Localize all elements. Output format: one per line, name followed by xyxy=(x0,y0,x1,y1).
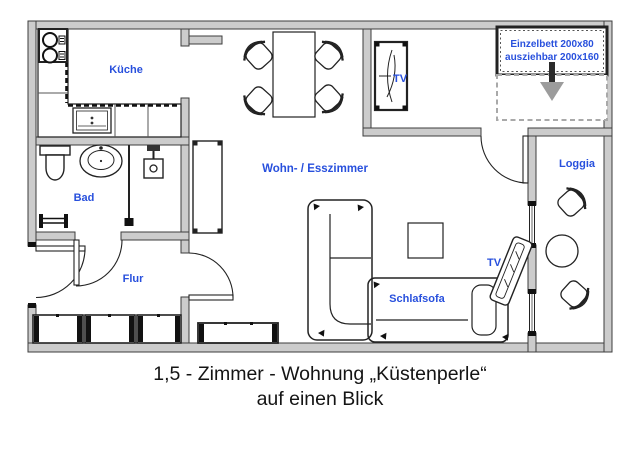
corner-sofa xyxy=(308,200,372,340)
wall-tvroom-bottom-left xyxy=(363,128,481,136)
stove xyxy=(39,29,67,63)
dining-table xyxy=(273,32,315,117)
wall-tvroom-bottom-right xyxy=(528,128,612,136)
label-sleeper-sofa: Schlafsofa xyxy=(389,293,446,305)
wall-shelf xyxy=(189,36,222,44)
wall-bath-bottom-left xyxy=(36,232,75,240)
floor-plan-page: Küche Bad Flur Wohn- / Esszimmer Loggia … xyxy=(0,0,640,452)
hall-wardrobes xyxy=(33,314,181,343)
label-kitchen: Küche xyxy=(109,64,143,76)
label-loggia: Loggia xyxy=(559,158,596,170)
floor-plan: Küche Bad Flur Wohn- / Esszimmer Loggia … xyxy=(0,0,640,452)
label-bed-line1: Einzelbett 200x80 xyxy=(510,39,594,50)
wall-bath-top xyxy=(36,137,189,145)
label-bath: Bad xyxy=(74,192,95,204)
label-living-dining: Wohn- / Esszimmer xyxy=(262,163,368,175)
wall-left-upper xyxy=(28,21,36,246)
kitchen-sink xyxy=(73,108,111,133)
caption-line2: auf einen Blick xyxy=(257,388,384,410)
tall-cabinet xyxy=(193,141,222,233)
wall-bath-bottom-right xyxy=(121,232,189,240)
sideboard xyxy=(198,322,278,343)
label-tv-room: TV xyxy=(393,73,408,85)
label-tv-living: TV xyxy=(487,257,502,269)
wall-kitchen-stub xyxy=(181,29,189,46)
wall-tvroom xyxy=(363,29,371,136)
bath-sink xyxy=(80,145,122,177)
wall-bottom xyxy=(28,343,612,352)
caption-line1: 1,5 - Zimmer - Wohnung „Küstenperle“ xyxy=(153,363,486,385)
side-table xyxy=(408,223,443,258)
wall-mid-upper xyxy=(181,98,189,253)
loggia-table xyxy=(546,235,578,267)
label-bed-line2: ausziehbar 200x160 xyxy=(505,52,599,63)
wall-loggia-seg1 xyxy=(528,136,536,205)
label-hall: Flur xyxy=(123,273,144,285)
wall-mid-lower xyxy=(181,297,189,343)
